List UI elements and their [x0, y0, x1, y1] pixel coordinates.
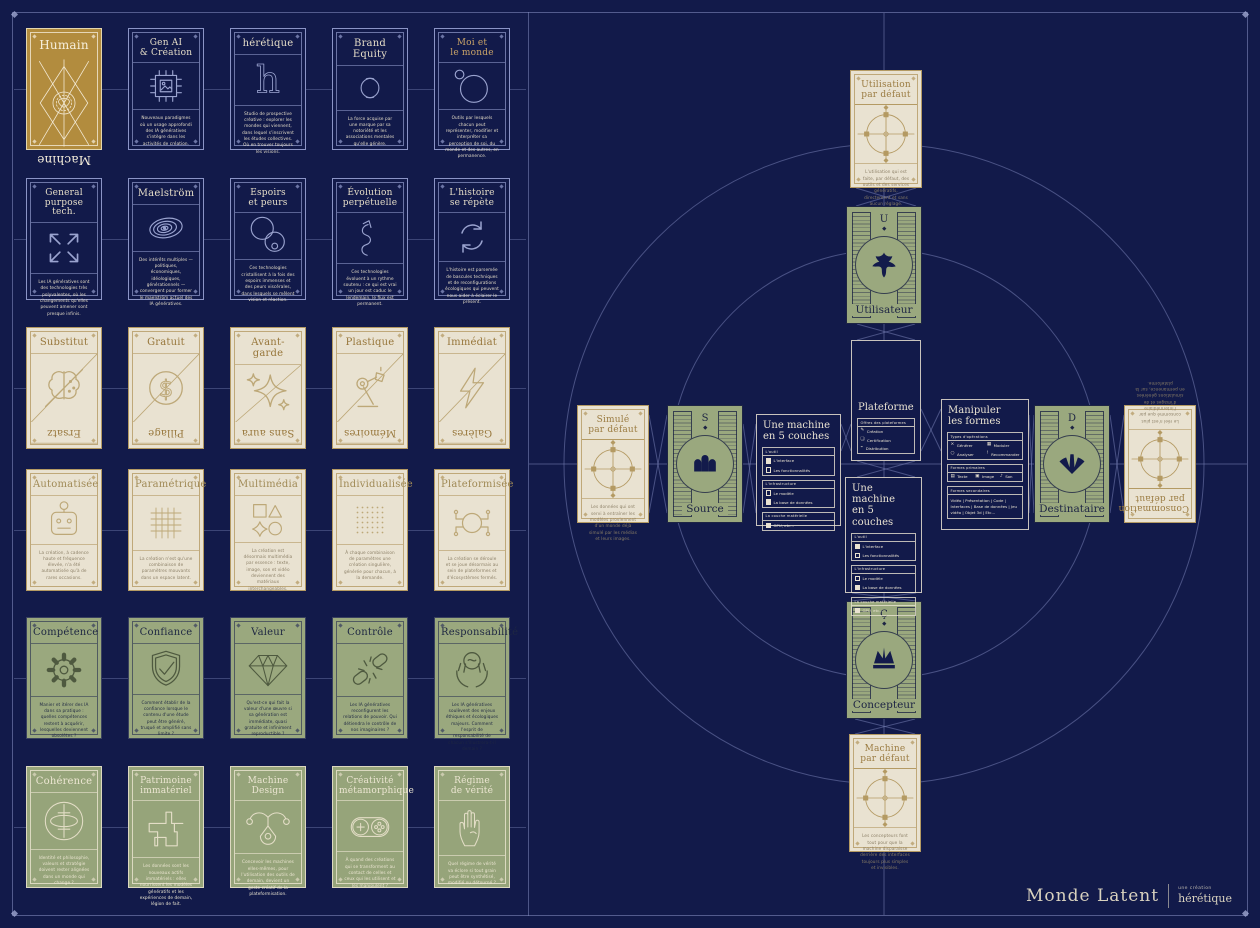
- card-inner-frame: L'histoirese répèteL'histoire est parsem…: [438, 182, 506, 296]
- compass-icon: [1129, 430, 1191, 488]
- box-plateforme: PlateformeOffres des plateformes✎Créatio…: [851, 340, 921, 461]
- card-inner-frame: Machinepar défautLes concepteurs font to…: [853, 738, 917, 848]
- card-plastique-memoires: PlastiqueMémoires: [332, 327, 408, 449]
- card-inner-frame: CohérenceIdentité et philosophie, valeur…: [30, 770, 98, 884]
- card-inner-frame: Gratuit$Pillage: [132, 331, 200, 445]
- card-body-text: Les IA génératives reconfigurent les rel…: [337, 696, 403, 734]
- card-title: Maelström: [133, 183, 199, 205]
- box-title-line: Manipuler: [948, 405, 1022, 416]
- card-title-line: Consommation: [1131, 502, 1189, 512]
- card-inner-frame: PlastiqueMémoires: [336, 331, 404, 445]
- chip-image-icon: [133, 63, 199, 109]
- card-title-line: Automatisée: [33, 480, 95, 491]
- primary-form-item: ▣Image: [973, 473, 998, 482]
- svg-text:h: h: [256, 57, 280, 101]
- robot-head-icon: [31, 496, 97, 544]
- checkbox-icon: [766, 467, 772, 473]
- card-concepteur: ÇConcepteur: [846, 601, 922, 719]
- card-humain-machine: HumainMachine: [26, 28, 102, 150]
- item-label: Moduler: [994, 443, 1010, 448]
- card-title-line: Valeur: [237, 628, 299, 639]
- card-body-text: À quand des créations qui se transformen…: [337, 851, 403, 887]
- matisse-leaf-icon: [855, 236, 913, 294]
- card-title: L'histoirese répète: [439, 183, 505, 213]
- card-title-line: se répète: [441, 199, 503, 209]
- dot-matrix-icon: [337, 496, 403, 544]
- card-responsabilite: ResponsabilitéLes IA génératives soulève…: [434, 617, 510, 739]
- card-avant-garde-sans-aura: Avant-gardeSans aura: [230, 327, 306, 449]
- card-title-line: Pillage: [135, 426, 197, 437]
- card-title-line: Machine: [33, 153, 95, 166]
- card-general-purpose-tech: Generalpurpose tech.Les IA génératives s…: [26, 178, 102, 300]
- card-maelstrom: MaelströmDes intérêts multiples — politi…: [128, 178, 204, 300]
- card-parametrique: ParamétriqueLa création n'est qu'une com…: [128, 469, 204, 591]
- box-title: Une machineen 5 couches: [846, 478, 921, 531]
- card-title: Generalpurpose tech.: [31, 183, 97, 223]
- card-title: Valeur: [235, 622, 301, 644]
- card-label-text: Destinataire: [1035, 503, 1109, 515]
- card-body-text: Les données sont les nouveaux actifs imm…: [133, 857, 199, 893]
- card-body-text: La création, à cadence haute et fréquenc…: [31, 544, 97, 586]
- box-title-line: en 5 couches: [852, 505, 915, 527]
- card-inner-frame: ParamétriqueLa création n'est qu'une com…: [132, 473, 200, 587]
- card-title-line: Gratuit: [135, 338, 197, 349]
- logo-brand: hérétique: [1178, 892, 1232, 906]
- operation-item: ▦Moduler: [984, 441, 1022, 450]
- checkbox-icon: [855, 585, 861, 591]
- card-title: Machinepar défaut: [854, 739, 916, 769]
- checkbox-icon: [855, 553, 861, 559]
- fan-burst-icon: [1043, 435, 1101, 493]
- compass-icon: [582, 440, 644, 498]
- card-title-line: Substitut: [33, 338, 95, 349]
- operation-item: !Recommander: [984, 450, 1022, 459]
- box-title: Manipulerles formes: [942, 400, 1028, 430]
- box-title: Plateforme: [852, 397, 920, 416]
- card-title-line: Multimédia: [237, 480, 299, 491]
- item-label: L'interface: [774, 458, 795, 463]
- card-inner-frame: ÉvolutionperpétuelleCes technologies évo…: [336, 182, 404, 296]
- item-label: La base de données: [863, 585, 902, 590]
- card-patrimoine-immateriel: PatrimoineimmatérielLes données sont les…: [128, 766, 204, 888]
- card-creativite-metamorphique: CréativitémétamorphiqueÀ quand des créat…: [332, 766, 408, 888]
- card-body-text: Manier et itérer des IA dans sa pratique…: [31, 696, 97, 734]
- card-flip-title: Mémoires: [337, 422, 403, 444]
- card-inner-frame: hérétiquehStudio de prospective créative…: [234, 32, 302, 146]
- letter-diamond-ornament: [882, 621, 886, 625]
- card-title: Cohérence: [31, 771, 97, 793]
- gear-icon: [31, 644, 97, 696]
- card-inner-frame: CréativitémétamorphiqueÀ quand des créat…: [336, 770, 404, 884]
- card-title-line: Plateformisée: [441, 480, 503, 491]
- card-title-line: Responsabilité: [441, 628, 503, 639]
- panel-item: Le modèle: [763, 489, 834, 498]
- card-inner-frame: PlateformiséeLa création se déroule et s…: [438, 473, 506, 587]
- card-label: Utilisateur: [847, 298, 921, 317]
- machine-layer-panel: L'infrastructureLe modèleLa base de donn…: [851, 565, 916, 593]
- card-inner-frame: Moi etle mondeOutils par lesquels chacun…: [438, 32, 506, 146]
- card-inner-frame: HumainMachine: [30, 32, 98, 146]
- item-label: Les fonctionnalités: [774, 468, 811, 473]
- card-title: Paramétrique: [133, 474, 199, 496]
- card-body-text: Le réel n'est plus consommé que par l'in…: [1129, 394, 1191, 430]
- card-title: Individualisée: [337, 474, 403, 496]
- card-flip-title: Galères: [439, 422, 505, 444]
- item-glyph-icon: ×: [951, 443, 955, 448]
- card-letter-glyph: D: [1068, 413, 1076, 424]
- card-inner-frame: CompétenceManier et itérer des IA dans s…: [30, 621, 98, 735]
- card-title: Gen AI& Création: [133, 33, 199, 63]
- card-body-text: Comment établir de la confiance lorsque …: [133, 694, 199, 734]
- item-label: GPU, etc...: [774, 523, 794, 528]
- shield-check-icon: [133, 644, 199, 694]
- card-title: Régimede vérité: [439, 771, 505, 801]
- primary-form-item: ♪Son: [997, 473, 1022, 482]
- card-title: Brand Equity: [337, 33, 403, 66]
- card-confiance: ConfianceComment établir de la confiance…: [128, 617, 204, 739]
- card-body-text: Nouveaux paradigmes où un usage approfon…: [133, 109, 199, 145]
- panel-header: Formes primaires: [948, 465, 1022, 473]
- card-title: Avant-garde: [235, 332, 301, 365]
- card-body-text: Quel régime de vérité va éclore si tout …: [439, 855, 505, 891]
- card-body-text: Les concepteurs font tout pour que la ma…: [854, 827, 916, 863]
- card-title: Évolutionperpétuelle: [337, 183, 403, 213]
- split-brain-icon: [31, 354, 97, 422]
- interlocked-c-icon: [337, 66, 403, 110]
- card-title-line: & Création: [135, 49, 197, 59]
- item-glyph-icon: ▤: [951, 475, 955, 480]
- card-flip-title: Machine: [31, 149, 97, 172]
- compass-icon: [854, 769, 916, 827]
- item-label: Recommander: [991, 452, 1019, 457]
- card-controle: ContrôleLes IA génératives reconfigurent…: [332, 617, 408, 739]
- card-body-text: Studio de prospective créative : explore…: [235, 105, 301, 145]
- operation-item: ×Générer: [948, 441, 984, 450]
- item-glyph-icon: !: [987, 452, 989, 457]
- card-title: Gratuit: [133, 332, 199, 354]
- card-label-text: Source: [682, 503, 727, 515]
- card-gen-ai-creation: Gen AI& CréationNouveaux paradigmes où u…: [128, 28, 204, 150]
- panel-item: L'interface: [852, 542, 915, 551]
- card-body-text: Les IA génératives sont des technologies…: [31, 273, 97, 309]
- card-flip-title: Pillage: [133, 422, 199, 444]
- platform-offers-panel: Offres des plateformes✎Création❏Certific…: [857, 418, 915, 454]
- card-title: Compétence: [31, 622, 97, 644]
- card-title-line: Mémoires: [339, 426, 401, 437]
- card-body-text: Les IA génératives soulèvent des enjeux …: [439, 696, 505, 734]
- card-inner-frame: IndividualiséeÀ chaque combinaison de pa…: [336, 473, 404, 587]
- card-title-line: Humain: [33, 39, 95, 52]
- arrows-out-icon: [31, 223, 97, 273]
- card-title-line: le monde: [441, 49, 503, 59]
- robot-arm-icon: [337, 354, 403, 422]
- card-body-text: Identité et philosophie, valeurs et stra…: [31, 849, 97, 885]
- card-heretique: hérétiquehStudio de prospective créative…: [230, 28, 306, 150]
- card-coherence: CohérenceIdentité et philosophie, valeur…: [26, 766, 102, 888]
- card-title: Humain: [31, 33, 97, 57]
- item-label: GPU, etc...: [863, 608, 883, 613]
- logo-subtitle: une création: [1178, 886, 1232, 892]
- gamepad-icon: [337, 801, 403, 851]
- card-title: Créativitémétamorphique: [337, 771, 403, 801]
- card-title: MachineDesign: [235, 771, 301, 801]
- card-individualisee: IndividualiséeÀ chaque combinaison de pa…: [332, 469, 408, 591]
- item-label: L'interface: [863, 544, 884, 549]
- grid-icon: [133, 496, 199, 550]
- pen-tool-icon: [235, 801, 301, 853]
- card-title-line: Cohérence: [33, 777, 95, 788]
- card-title-line: hérétique: [237, 39, 299, 50]
- checkbox-icon: [766, 490, 772, 496]
- card-title: Confiance: [133, 622, 199, 644]
- card-body-text: Ces technologies évoluent à un rythme so…: [337, 263, 403, 299]
- panel-item: Les fonctionnalités: [763, 465, 834, 474]
- item-glyph-icon: ○: [951, 452, 955, 457]
- card-title: Multimédia: [235, 474, 301, 496]
- item-label: Le modèle: [863, 576, 883, 581]
- winding-arrow-icon: [337, 213, 403, 263]
- card-inner-frame: Régimede véritéQuel régime de vérité va …: [438, 770, 506, 884]
- lightning-icon: [439, 354, 505, 422]
- machine-layer-panel: La couche matérielleGPU, etc...: [851, 597, 916, 616]
- card-title-line: Plastique: [339, 338, 401, 349]
- machine-layer-panel: La couche matérielleGPU, etc...: [762, 512, 835, 531]
- card-gratuit-pillage: Gratuit$Pillage: [128, 327, 204, 449]
- card-inner-frame: Brand EquityLa force acquise par une mar…: [336, 32, 404, 146]
- sparkles-icon: [235, 365, 301, 423]
- card-title: Automatisée: [31, 474, 97, 496]
- logo: Monde Latent une création hérétique: [1026, 884, 1232, 908]
- card-title: hérétique: [235, 33, 301, 55]
- card-body-text: L'histoire est parsemée de bascules tech…: [439, 261, 505, 297]
- card-title: Contrôle: [337, 622, 403, 644]
- box-title: Une machineen 5 couches: [757, 415, 840, 445]
- hub-network-icon: [439, 496, 505, 550]
- sacred-geometry-icon: [31, 57, 97, 149]
- box-title-line: Plateforme: [858, 402, 914, 413]
- panel-item: GPU, etc...: [852, 606, 915, 615]
- checkbox-icon: [855, 544, 861, 550]
- item-label: Les fonctionnalités: [863, 553, 900, 558]
- circles-pair-icon: [235, 213, 301, 259]
- frame-corner-ornament: [11, 910, 18, 917]
- panel-item: Le modèle: [852, 574, 915, 583]
- card-title-line: Galères: [441, 426, 503, 437]
- broken-chain-icon: [337, 644, 403, 696]
- card-valeur: ValeurQu'est-ce qui fait la valeur d'une…: [230, 617, 306, 739]
- machine-layer-panel: L'outilL'interfaceLes fonctionnalités: [762, 447, 835, 475]
- pixel-star-icon: [133, 801, 199, 857]
- compass-icon: [855, 105, 917, 163]
- card-title-line: Individualisée: [339, 480, 401, 491]
- card-title: Responsabilité: [439, 622, 505, 644]
- item-label: Analyser: [957, 452, 974, 457]
- card-body-text: Qu'est-ce qui fait la valeur d'une œuvre…: [235, 694, 301, 734]
- card-title-line: Brand Equity: [339, 39, 401, 61]
- card-label: Destinataire: [1035, 497, 1109, 516]
- card-letter: D: [1035, 413, 1109, 429]
- card-title-line: Compétence: [33, 628, 95, 639]
- letter-diamond-ornament: [882, 226, 886, 230]
- panel-header: L'infrastructure: [763, 481, 834, 489]
- item-label: Texte: [957, 474, 967, 479]
- card-title-line: Sans aura: [237, 426, 299, 437]
- item-label: La base de données: [774, 500, 813, 505]
- frame-corner-ornament: [1242, 910, 1249, 917]
- card-source: SSource: [667, 405, 743, 523]
- panel-header: Types d'opérations: [948, 433, 1022, 441]
- machine-layer-panel: L'outilL'interfaceLes fonctionnalités: [851, 533, 916, 561]
- box-machine-5-couches: Une machineen 5 couchesL'outilL'interfac…: [845, 477, 922, 593]
- panel-item: La base de données: [763, 498, 834, 507]
- card-histoire-se-repete: L'histoirese répèteL'histoire est parsem…: [434, 178, 510, 300]
- card-title-line: par défaut: [584, 426, 642, 436]
- card-inner-frame: MaelströmDes intérêts multiples — politi…: [132, 182, 200, 296]
- panel-divider: [528, 12, 529, 916]
- box-title-line: Une machine: [852, 483, 915, 505]
- card-letter: S: [668, 413, 742, 429]
- card-machine-par-defaut: Machinepar défautLes concepteurs font to…: [849, 734, 921, 852]
- item-glyph-icon: ⌁: [861, 446, 864, 451]
- card-title-line: par défaut: [856, 755, 914, 765]
- card-inner-frame: AutomatiséeLa création, à cadence haute …: [30, 473, 98, 587]
- box-title-line: en 5 couches: [763, 431, 834, 442]
- panel-header: Formes secondaires: [948, 487, 1022, 495]
- card-inner-frame: Utilisationpar défautL'utilisation qui e…: [854, 74, 918, 184]
- card-utilisation-par-defaut: Utilisationpar défautL'utilisation qui e…: [850, 70, 922, 188]
- card-inner-frame: PatrimoineimmatérielLes données sont les…: [132, 770, 200, 884]
- card-title: Espoirset peurs: [235, 183, 301, 213]
- item-glyph-icon: ▣: [975, 475, 979, 480]
- logo-title: Monde Latent: [1026, 886, 1159, 906]
- card-body-text: Outils par lesquels chacun peut représen…: [439, 109, 505, 145]
- forms-panel: Formes secondairesVidéo | Présentation |…: [947, 486, 1023, 519]
- panel-item: ✎Création: [858, 427, 914, 436]
- card-immediat-galeres: ImmédiatGalères: [434, 327, 510, 449]
- panel-item: Les fonctionnalités: [852, 551, 915, 560]
- forms-panel: Formes primaires▤Texte▣Image♪Son: [947, 464, 1023, 483]
- panel-header: La couche matérielle: [763, 513, 834, 521]
- panel-header: L'infrastructure: [852, 566, 915, 574]
- panel-header: Offres des plateformes: [858, 419, 914, 427]
- card-title-line: purpose tech.: [33, 199, 95, 218]
- panel-item: L'interface: [763, 456, 834, 465]
- card-utilisateur: UUtilisateur: [846, 206, 922, 324]
- card-title-line: par défaut: [1131, 493, 1189, 503]
- card-label: Concepteur: [847, 693, 921, 712]
- card-inner-frame: Espoirset peursCes technologies cristall…: [234, 182, 302, 296]
- card-title-line: immatériel: [135, 787, 197, 797]
- box-title-line: Une machine: [763, 420, 834, 431]
- card-inner-frame: MultimédiaLa création est désormais mult…: [234, 473, 302, 587]
- card-label-text: Utilisateur: [851, 304, 916, 316]
- panel-item: ❏Certification: [858, 436, 914, 445]
- card-title-line: perpétuelle: [339, 199, 401, 209]
- card-body-text: L'utilisation qui est faite, par défaut,…: [855, 163, 917, 199]
- shapes-icon: [235, 496, 301, 542]
- vortex-icon: [133, 205, 199, 251]
- card-substitut-ersatz: SubstitutErsatz: [26, 327, 102, 449]
- svg-text:$: $: [159, 377, 173, 403]
- card-body-text: La création n'est qu'une combinaison de …: [133, 550, 199, 586]
- checkbox-icon: [766, 458, 772, 464]
- card-body-text: Les données qui ont servi à entraîner le…: [582, 498, 644, 534]
- panel-item: ⌁Distribution: [858, 444, 914, 453]
- box-machine-5-couches: Une machineen 5 couchesL'outilL'interfac…: [756, 414, 841, 526]
- diamond-icon: [235, 644, 301, 694]
- card-title-line: de vérité: [441, 787, 503, 797]
- letter-diamond-ornament: [1070, 425, 1074, 429]
- card-body-text: La création se déroule et se joue désorm…: [439, 550, 505, 586]
- card-inner-frame: Gen AI& CréationNouveaux paradigmes où u…: [132, 32, 200, 146]
- card-body-text: Des intérêts multiples — politiques, éco…: [133, 251, 199, 295]
- card-body-text: La création est désormais multimédia par…: [235, 542, 301, 586]
- checkbox-icon: [766, 499, 772, 505]
- item-label: Image: [982, 474, 994, 479]
- card-title: Utilisationpar défaut: [855, 75, 917, 105]
- checkbox-icon: [766, 523, 772, 529]
- card-title: Plateformisée: [439, 474, 505, 496]
- operation-item: ○Analyser: [948, 450, 984, 459]
- checkbox-icon: [855, 576, 861, 582]
- card-title-line: Paramétrique: [135, 480, 197, 491]
- card-inner-frame: Consommationpar défautLe réel n'est plus…: [1128, 409, 1192, 519]
- card-brand-equity: Brand EquityLa force acquise par une mar…: [332, 28, 408, 150]
- item-glyph-icon: ❏: [861, 438, 865, 443]
- card-flip-title: Sans aura: [235, 422, 301, 444]
- card-title-line: Maelström: [135, 189, 197, 200]
- item-label: Certification: [867, 438, 891, 443]
- panel-header: L'outil: [763, 448, 834, 456]
- card-inner-frame: ConfianceComment établir de la confiance…: [132, 621, 200, 735]
- card-regime-de-verite: Régimede véritéQuel régime de vérité va …: [434, 766, 510, 888]
- card-destinataire: DDestinataire: [1034, 405, 1110, 523]
- planet-moon-icon: [439, 63, 505, 109]
- crown-icon: [855, 631, 913, 689]
- open-hand-icon: [439, 801, 505, 855]
- card-inner-frame: Generalpurpose tech.Les IA génératives s…: [30, 182, 98, 296]
- card-title: Immédiat: [439, 332, 505, 354]
- machine-layer-panel: L'infrastructureLe modèleLa base de donn…: [762, 480, 835, 508]
- card-simule-par-defaut: Simulépar défautLes données qui ont serv…: [577, 405, 649, 523]
- card-automatisee: AutomatiséeLa création, à cadence haute …: [26, 469, 102, 591]
- item-label: Le modèle: [774, 491, 794, 496]
- card-title: Consommationpar défaut: [1129, 488, 1191, 518]
- card-body-text: À chaque combinaison de paramètres une c…: [337, 544, 403, 586]
- letter-h-icon: h: [235, 55, 301, 105]
- card-title-line: Confiance: [135, 628, 197, 639]
- cycle-arrows-icon: [439, 213, 505, 261]
- card-inner-frame: MachineDesignConcevoir les machines elle…: [234, 770, 302, 884]
- triple-arches-icon: [676, 435, 734, 493]
- card-title: Plastique: [337, 332, 403, 354]
- card-letter: U: [847, 214, 921, 230]
- card-title-line: Ersatz: [33, 426, 95, 437]
- card-inner-frame: ValeurQu'est-ce qui fait la valeur d'une…: [234, 621, 302, 735]
- box-manipuler-les-formes: Manipulerles formesTypes d'opérations×Gé…: [941, 399, 1029, 530]
- item-label: Générer: [957, 443, 973, 448]
- box-title-line: les formes: [948, 416, 1022, 427]
- hands-globe-icon: [439, 644, 505, 696]
- card-inner-frame: Simulépar défautLes données qui ont serv…: [581, 409, 645, 519]
- card-plateformisee: PlateformiséeLa création se déroule et s…: [434, 469, 510, 591]
- card-competence: CompétenceManier et itérer des IA dans s…: [26, 617, 102, 739]
- card-consommation-par-defaut: Consommationpar défautLe réel n'est plus…: [1124, 405, 1196, 523]
- panel-item: La base de données: [852, 583, 915, 592]
- card-title-line: Design: [237, 787, 299, 797]
- card-inner-frame: ResponsabilitéLes IA génératives soulève…: [438, 621, 506, 735]
- frame-corner-ornament: [11, 11, 18, 18]
